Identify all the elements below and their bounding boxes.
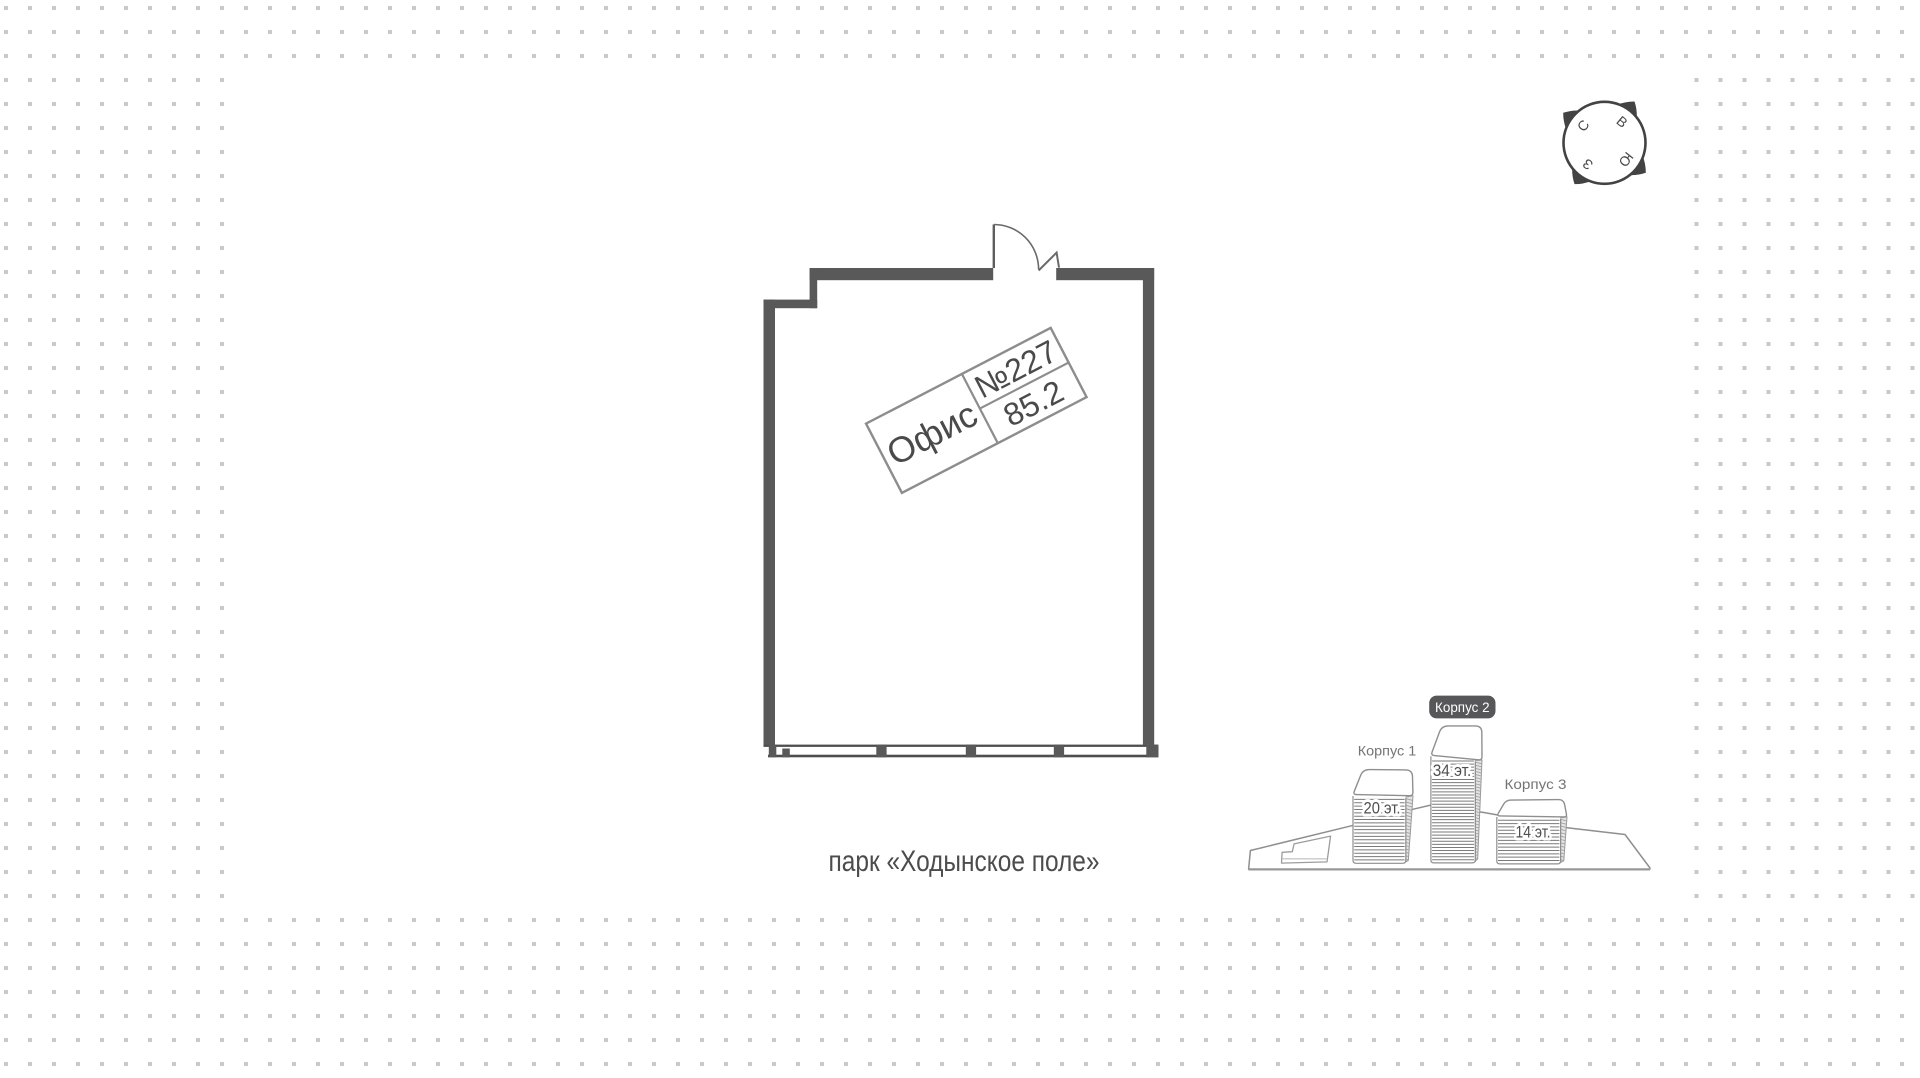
svg-text:Корпус 3: Корпус 3: [1505, 776, 1567, 792]
svg-text:Корпус 1: Корпус 1: [1358, 743, 1417, 759]
svg-text:20 эт.: 20 эт.: [1364, 798, 1401, 817]
svg-text:14 эт.: 14 эт.: [1516, 823, 1551, 842]
svg-text:Корпус 2: Корпус 2: [1435, 699, 1490, 715]
svg-text:парк «Ходынское поле»: парк «Ходынское поле»: [829, 845, 1100, 878]
svg-text:34 эт.: 34 эт.: [1433, 761, 1472, 780]
